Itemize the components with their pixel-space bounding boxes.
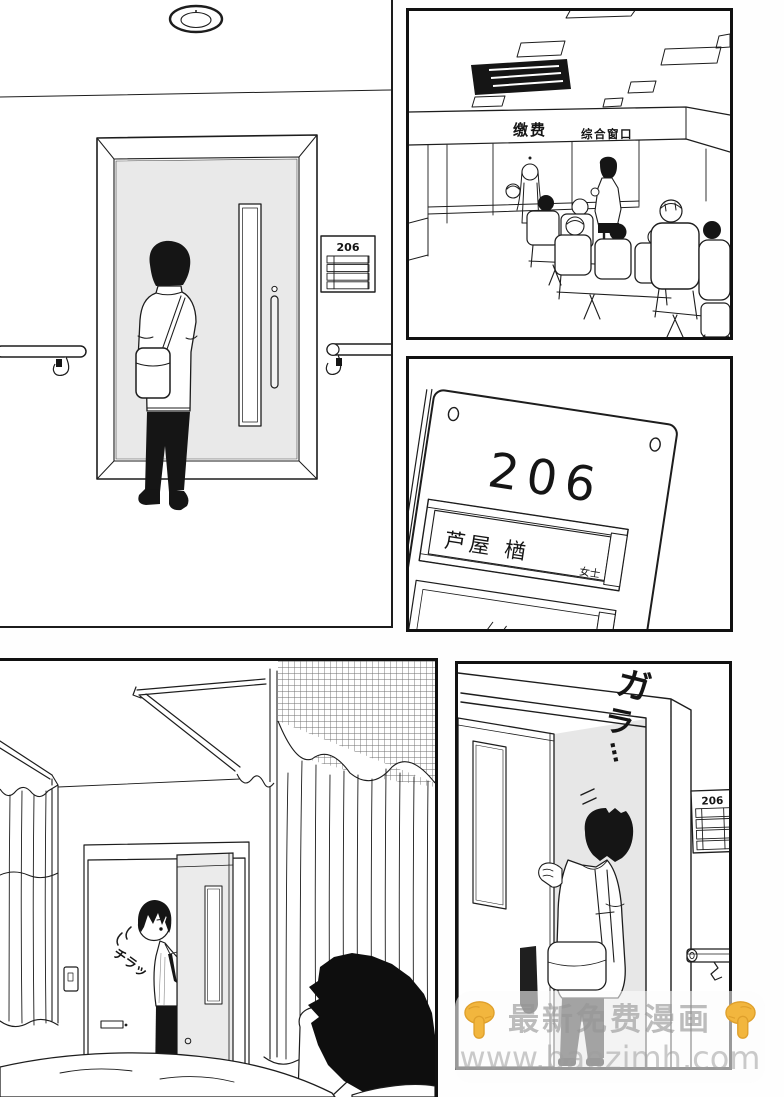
room-number-text: 206 (701, 795, 723, 808)
sfx-door-slide-1: ガ (612, 664, 655, 710)
panel-hospital-room: チラッ (0, 658, 438, 1097)
room-door (97, 135, 317, 479)
curtain-left (0, 741, 58, 1027)
room-number-text: 206 (337, 241, 360, 254)
light-switch (64, 967, 78, 991)
watermark-url: www.baozimh.com (460, 1042, 761, 1074)
sfx-peek: チラッ (110, 946, 150, 981)
room-number-sign: 206 (691, 790, 729, 853)
watermark-row: 最新免费漫画 (461, 1000, 759, 1040)
pointing-down-icon (461, 1000, 498, 1040)
room-number-sign: 206 (321, 236, 375, 292)
motion-lines (117, 927, 131, 945)
handrail-right (687, 949, 729, 980)
handrail-right (326, 344, 391, 375)
wall-line (58, 779, 240, 787)
ceiling-light (170, 6, 222, 32)
shoulder-bag (136, 348, 170, 398)
blanket (0, 1053, 335, 1097)
ceiling-curtain-track (133, 679, 266, 771)
site-watermark: 最新免费漫画 www.baozimh.com (455, 991, 765, 1083)
pointing-down-icon (722, 1000, 759, 1040)
panel-hallway: 206 (0, 0, 393, 628)
hallway-handrail (101, 1021, 123, 1028)
watermark-title: 最新免费漫画 (508, 1005, 712, 1036)
sign-payment: 缴费 (513, 121, 547, 139)
waiting-benches (527, 195, 730, 337)
handrail-left (0, 346, 86, 375)
hallway-illustration: 206 (0, 0, 391, 626)
manga-page: 206 (0, 0, 784, 1097)
panel-nameplate: 206 芦屋 楢 女士 (406, 356, 733, 632)
panel-waiting-room: 缴费 综合窗口 (406, 8, 733, 340)
nameplate-illustration: 206 芦屋 楢 女士 (409, 359, 730, 629)
hospital-room-illustration: チラッ (0, 661, 435, 1097)
ceiling-ac-unit (471, 59, 571, 95)
sign-general-window: 综合窗口 (581, 127, 633, 141)
waiting-room-illustration: 缴费 综合窗口 (409, 11, 730, 337)
